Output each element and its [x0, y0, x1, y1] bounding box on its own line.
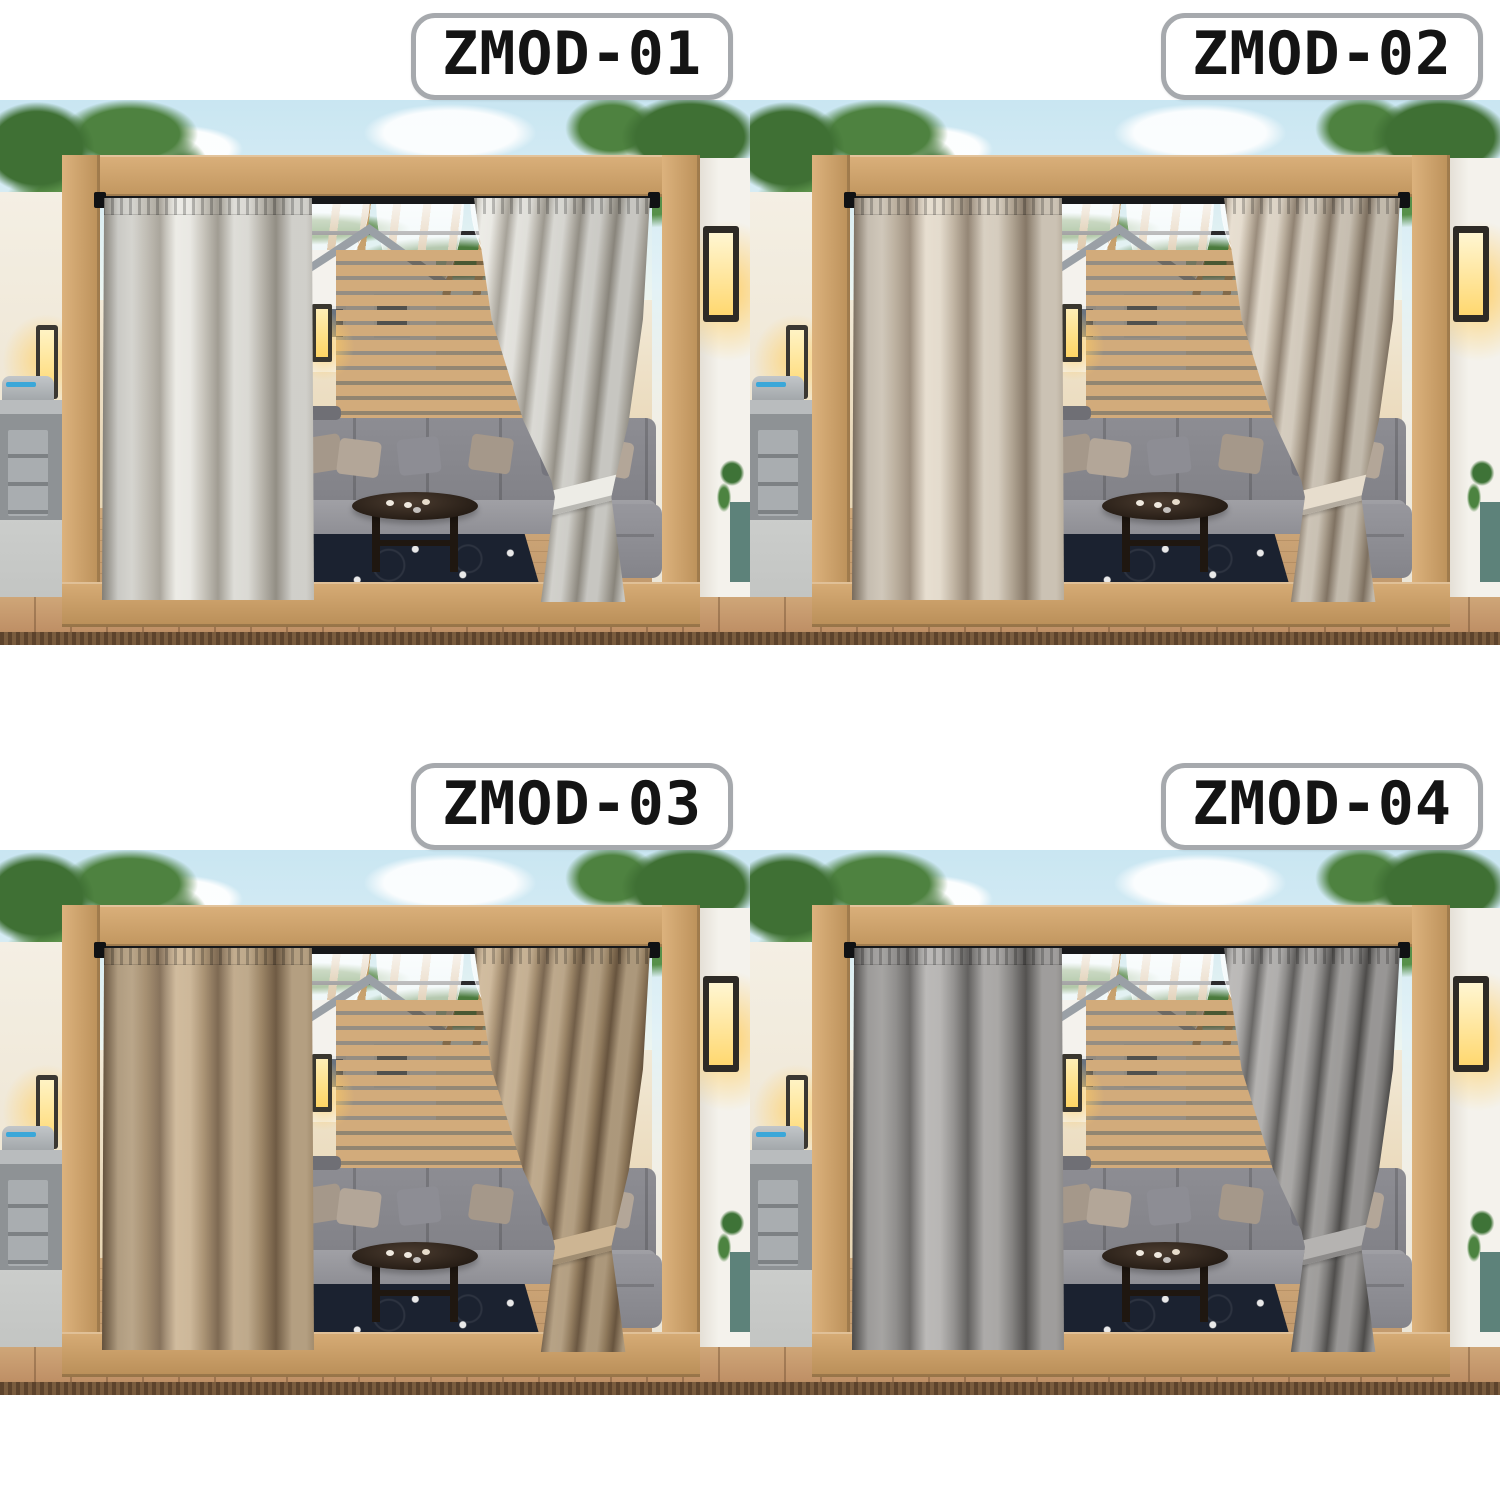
variant-label: ZMOD-02 [1192, 19, 1452, 89]
pergola-top-beam [812, 905, 1450, 947]
pergola-left-post [812, 155, 850, 627]
right-counter [1480, 502, 1500, 582]
sofa-pillow [336, 438, 382, 479]
coffee-table-legs [372, 1264, 458, 1322]
variant-cell: ZMOD-01 [0, 0, 750, 750]
variant-label-badge: ZMOD-02 [1161, 13, 1483, 100]
product-variant-collage: ZMOD-01 [0, 0, 1500, 1500]
product-photo [0, 100, 750, 645]
variant-label-badge: ZMOD-01 [411, 13, 733, 100]
patio-scene [750, 850, 1500, 1395]
sofa-pillow [396, 436, 442, 476]
sofa-pillow [1086, 1188, 1132, 1229]
variant-label: ZMOD-03 [442, 769, 702, 839]
curtain-panel-left [102, 198, 314, 600]
variant-label-badge: ZMOD-04 [1161, 763, 1483, 850]
pergola-left-post [62, 155, 100, 627]
right-wall-lantern [703, 226, 739, 322]
concrete-floor [750, 520, 816, 604]
patio-scene [750, 100, 1500, 645]
sofa-pillow [1146, 436, 1192, 476]
concrete-floor [750, 1270, 816, 1354]
sofa-pillow [468, 1183, 515, 1224]
pergola-left-post [62, 905, 100, 1377]
patio-scene [0, 850, 750, 1395]
curtain-panel-left [852, 198, 1064, 600]
product-photo [0, 850, 750, 1395]
right-wall-lantern [1453, 976, 1489, 1072]
right-wall-lantern [703, 976, 739, 1072]
middle-wall-lantern [312, 304, 332, 362]
coffee-table-top [352, 492, 478, 520]
deck-front-edge [750, 632, 1500, 645]
coffee-table-legs [372, 514, 458, 572]
curtain-panel-left [102, 948, 314, 1350]
sofa-pillow [1146, 1186, 1192, 1226]
coffee-table-top [1102, 1242, 1228, 1270]
pergola-top-beam [812, 155, 1450, 197]
sofa-pillow [1218, 433, 1265, 474]
right-wall-lantern [1453, 226, 1489, 322]
pergola-right-post [1412, 905, 1450, 1377]
sofa-pillow [1086, 438, 1132, 479]
pergola-right-post [1412, 155, 1450, 627]
pergola-left-post [812, 905, 850, 1377]
pergola-top-beam [62, 905, 700, 947]
coffee-table-legs [1122, 514, 1208, 572]
concrete-floor [0, 520, 66, 604]
curtain-panel-left [852, 948, 1064, 1350]
deck-front-edge [0, 1382, 750, 1395]
pergola-top-beam [62, 155, 700, 197]
product-photo [750, 100, 1500, 645]
sofa-pillow [1218, 1183, 1265, 1224]
variant-label-badge: ZMOD-03 [411, 763, 733, 850]
middle-wall-lantern [1062, 1054, 1082, 1112]
right-counter [730, 502, 750, 582]
patio-scene [0, 100, 750, 645]
coffee-table-legs [1122, 1264, 1208, 1322]
coffee-table-top [352, 1242, 478, 1270]
concrete-floor [0, 1270, 66, 1354]
right-counter [730, 1252, 750, 1332]
sofa-pillow [468, 433, 515, 474]
variant-label: ZMOD-01 [442, 19, 702, 89]
middle-wall-lantern [312, 1054, 332, 1112]
middle-wall-lantern [1062, 304, 1082, 362]
coffee-table-top [1102, 492, 1228, 520]
variant-cell: ZMOD-04 [750, 750, 1500, 1500]
right-counter [1480, 1252, 1500, 1332]
pergola-right-post [662, 905, 700, 1377]
sofa-pillow [336, 1188, 382, 1229]
deck-front-edge [0, 632, 750, 645]
variant-cell: ZMOD-03 [0, 750, 750, 1500]
sofa-pillow [396, 1186, 442, 1226]
product-photo [750, 850, 1500, 1395]
deck-front-edge [750, 1382, 1500, 1395]
variant-label: ZMOD-04 [1192, 769, 1452, 839]
pergola-right-post [662, 155, 700, 627]
variant-cell: ZMOD-02 [750, 0, 1500, 750]
